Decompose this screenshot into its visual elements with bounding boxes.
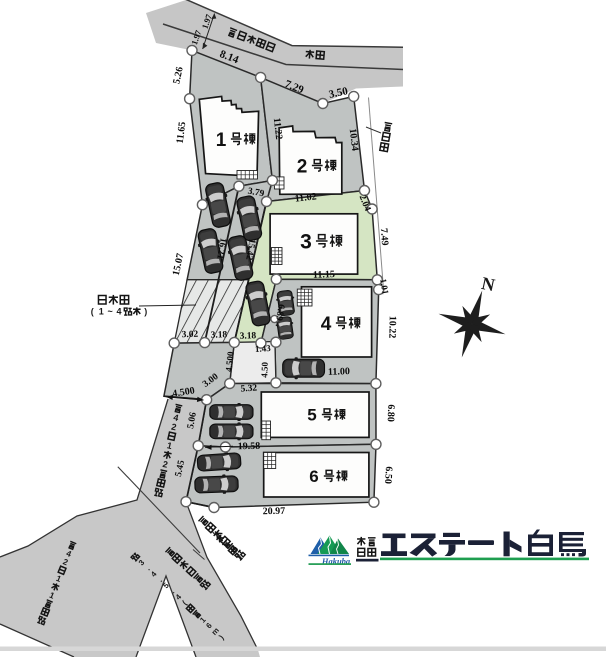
svg-text:3: 3 xyxy=(300,231,312,254)
svg-text:5.32: 5.32 xyxy=(240,383,258,394)
svg-text:3.18: 3.18 xyxy=(210,330,227,341)
svg-text:5: 5 xyxy=(307,406,316,425)
svg-text:20.97: 20.97 xyxy=(263,506,286,518)
svg-text:4: 4 xyxy=(321,314,332,335)
svg-text:4: 4 xyxy=(116,306,121,316)
svg-text:19.58: 19.58 xyxy=(238,441,261,452)
svg-text:10.22: 10.22 xyxy=(386,316,397,339)
svg-text:4.50: 4.50 xyxy=(259,361,270,378)
svg-text:2: 2 xyxy=(297,156,308,177)
svg-text:(: ( xyxy=(91,306,94,316)
svg-text:7.49: 7.49 xyxy=(378,228,390,246)
svg-text:11.00: 11.00 xyxy=(328,366,350,378)
svg-text:1: 1 xyxy=(99,306,104,316)
svg-text:): ) xyxy=(144,306,147,316)
svg-text:6.80: 6.80 xyxy=(385,404,397,422)
svg-text:3.18: 3.18 xyxy=(239,331,256,342)
svg-text:~: ~ xyxy=(107,306,112,316)
svg-text:1: 1 xyxy=(216,130,227,151)
svg-text:3.02: 3.02 xyxy=(181,330,198,341)
svg-text:11.15: 11.15 xyxy=(313,269,335,281)
svg-text:6.50: 6.50 xyxy=(382,466,394,484)
svg-text:1.43: 1.43 xyxy=(255,343,272,354)
svg-text:6: 6 xyxy=(309,467,318,486)
